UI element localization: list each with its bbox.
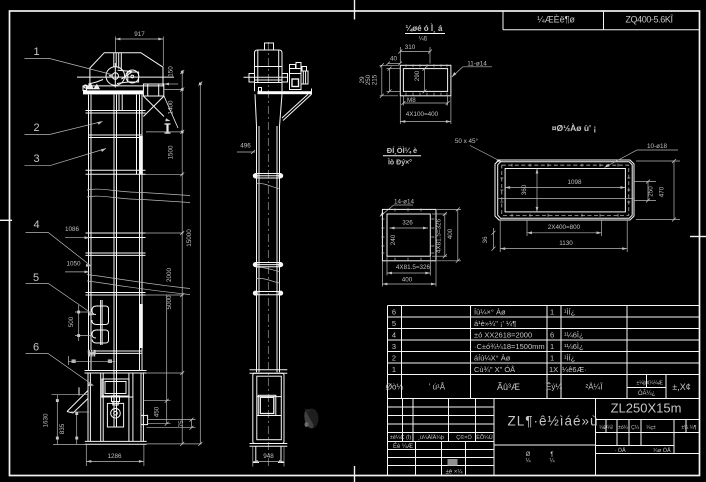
svg-text:1: 1 (550, 342, 554, 351)
svg-text:¹¼6Ì¿: ¹¼6Ì¿ (564, 342, 584, 351)
svg-text:310: 310 (405, 44, 416, 51)
svg-text:2000: 2000 (166, 268, 173, 283)
svg-text:1050: 1050 (66, 261, 81, 268)
svg-text:¼ç±: ¼ç± (646, 425, 656, 431)
svg-text:Ç¼: Ç¼ (631, 425, 640, 431)
svg-text:Ìò Ðý×°: Ìò Ðý×° (387, 158, 412, 167)
svg-text:290: 290 (414, 70, 421, 81)
svg-text:240: 240 (390, 234, 397, 245)
svg-text:¸ü¼ÄÎÄ¼þ: ¸ü¼ÄÎÄ¼þ (418, 434, 444, 441)
svg-text:2: 2 (392, 354, 396, 363)
svg-text:¼ß: ¼ß (419, 37, 428, 43)
svg-text:6: 6 (33, 342, 39, 354)
svg-text:Cù¾" X" ÓÅ: Cù¾" X" ÓÅ (474, 365, 515, 374)
svg-text:±,X¢: ±,X¢ (672, 382, 690, 392)
svg-text:1: 1 (392, 365, 396, 374)
svg-text:±¼ ¼¶: ±¼ ¼¶ (681, 425, 696, 431)
svg-text:²Ä¼Ï: ²Ä¼Ï (586, 383, 604, 392)
svg-text:áÍù¼X° Àø: áÍù¼X° Àø (474, 354, 511, 363)
svg-text:29: 29 (359, 76, 366, 84)
svg-text:ÓÃ¼¿: ÓÃ¼¿ (638, 390, 656, 397)
svg-text:400: 400 (402, 277, 413, 284)
svg-text:· ÓÅ: · ÓÅ (614, 447, 626, 454)
svg-text:±ó XX2618=2000: ±ó XX2618=2000 (474, 331, 532, 340)
svg-text:215: 215 (372, 74, 379, 85)
svg-text:ÈÕ¼Ú: ÈÕ¼Ú (476, 434, 493, 441)
svg-text:36: 36 (482, 236, 489, 244)
svg-text:3: 3 (33, 153, 39, 165)
svg-text:400: 400 (447, 228, 454, 239)
svg-text:835: 835 (59, 423, 66, 434)
svg-text:11-ø14: 11-ø14 (467, 61, 487, 68)
svg-text:¼Ø¼Ì: ¼Ø¼Ì (599, 424, 613, 431)
svg-text:1: 1 (33, 46, 39, 58)
svg-text:450: 450 (154, 406, 161, 417)
svg-text:¹ÌÍ¿: ¹ÌÍ¿ (564, 354, 576, 363)
svg-text:50 x 45°: 50 x 45° (455, 137, 479, 145)
svg-text:360: 360 (521, 184, 528, 195)
svg-text:¶: ¶ (550, 452, 553, 458)
svg-text:ÐÍ¸ÖÌ¼ è: ÐÍ¸ÖÌ¼ è (387, 146, 417, 155)
svg-text:10-ø18: 10-ø18 (647, 143, 667, 150)
svg-text:500: 500 (68, 316, 75, 327)
svg-text:150: 150 (168, 66, 175, 77)
svg-text:4X100=400: 4X100=400 (406, 111, 439, 118)
svg-text:¼ê6Æ·: ¼ê6Æ· (562, 365, 587, 374)
svg-text:2: 2 (33, 122, 39, 134)
svg-text:ZQ400-5.6KÎ: ZQ400-5.6KÎ (625, 15, 673, 25)
svg-text:75: 75 (178, 420, 185, 428)
svg-text:·C±ó¾¼18=1500mm: ·C±ó¾¼18=1500mm (474, 342, 545, 351)
svg-text:¼øé ó Ì¸ á: ¼øé ó Ì¸ á (406, 24, 443, 33)
svg-text:¼ø ÓÅ: ¼ø ÓÅ (653, 447, 671, 454)
svg-text:6: 6 (392, 308, 396, 317)
svg-text:15000: 15000 (186, 229, 193, 247)
svg-text:4X81.5=326: 4X81.5=326 (436, 218, 443, 253)
svg-text:40: 40 (390, 56, 398, 63)
svg-text:Ç©×Ö: Ç©×Ö (456, 434, 472, 441)
svg-text:¤Ø½Àø ù' ¡: ¤Ø½Àø ù' ¡ (552, 123, 597, 133)
svg-text:±ê¼C (Ì): ±ê¼C (Ì) (390, 434, 412, 441)
svg-text:Êý¼: Êý¼ (546, 383, 562, 392)
svg-text:3: 3 (392, 342, 396, 351)
svg-text:1: 1 (550, 354, 554, 363)
svg-text:496: 496 (240, 143, 251, 150)
svg-text:5: 5 (33, 272, 39, 284)
svg-text:1130: 1130 (559, 240, 573, 247)
svg-text:¹ÌÍ¿: ¹ÌÍ¿ (564, 308, 576, 317)
svg-text:Øò¼: Øò¼ (386, 383, 404, 392)
svg-text:1630: 1630 (43, 413, 50, 428)
svg-text:470: 470 (659, 186, 666, 197)
svg-text:1286: 1286 (107, 453, 122, 460)
svg-text:±¼þX¼¼Æ: ±¼þX¼¼Æ (637, 381, 663, 387)
svg-text:Ø: Ø (526, 452, 531, 458)
svg-text:Éè ¼Æ: Éè ¼Æ (393, 443, 413, 450)
svg-text:±ê ×¼: ±ê ×¼ (446, 470, 464, 476)
svg-text:5: 5 (392, 319, 396, 328)
svg-text:1: 1 (550, 308, 554, 317)
svg-text:¼ÆÈë¶ø: ¼ÆÈë¶ø (537, 15, 575, 25)
svg-text:4: 4 (392, 331, 396, 340)
svg-text:ZL250X15m: ZL250X15m (611, 401, 682, 416)
svg-text:Ãû³Æ: Ãû³Æ (497, 382, 520, 392)
svg-text:14-ø14: 14-ø14 (394, 199, 414, 206)
svg-text:4X81.5=326: 4X81.5=326 (396, 264, 431, 271)
svg-text:6: 6 (550, 331, 554, 340)
svg-text:M8: M8 (407, 97, 416, 104)
svg-text:1086: 1086 (65, 226, 80, 233)
svg-text:' ú¹Å: ' ú¹Å (429, 383, 446, 392)
svg-text:2X400=800: 2X400=800 (548, 224, 581, 231)
svg-text:5000: 5000 (166, 295, 173, 310)
svg-text:250: 250 (648, 186, 655, 197)
svg-text:1098: 1098 (567, 179, 582, 186)
svg-text:á¹è»¼" ¡' ¼¶: á¹è»¼" ¡' ¼¶ (474, 319, 516, 328)
svg-text:1500: 1500 (168, 145, 175, 160)
svg-text:326: 326 (402, 220, 413, 227)
svg-text:917: 917 (134, 31, 145, 38)
svg-text:Íù¼×° Àø: Íù¼×° Àø (474, 308, 506, 317)
svg-text:1400: 1400 (168, 100, 175, 115)
svg-text:±ó¼: ±ó¼ (618, 425, 629, 431)
svg-text:ZL¶·ê½ìáé»ù: ZL¶·ê½ìáé»ù (507, 414, 598, 429)
svg-text:4: 4 (33, 219, 39, 231)
svg-text:¹¼6Ì¿: ¹¼6Ì¿ (564, 331, 584, 340)
svg-text:948: 948 (263, 453, 274, 460)
svg-text:1X: 1X (549, 365, 558, 374)
